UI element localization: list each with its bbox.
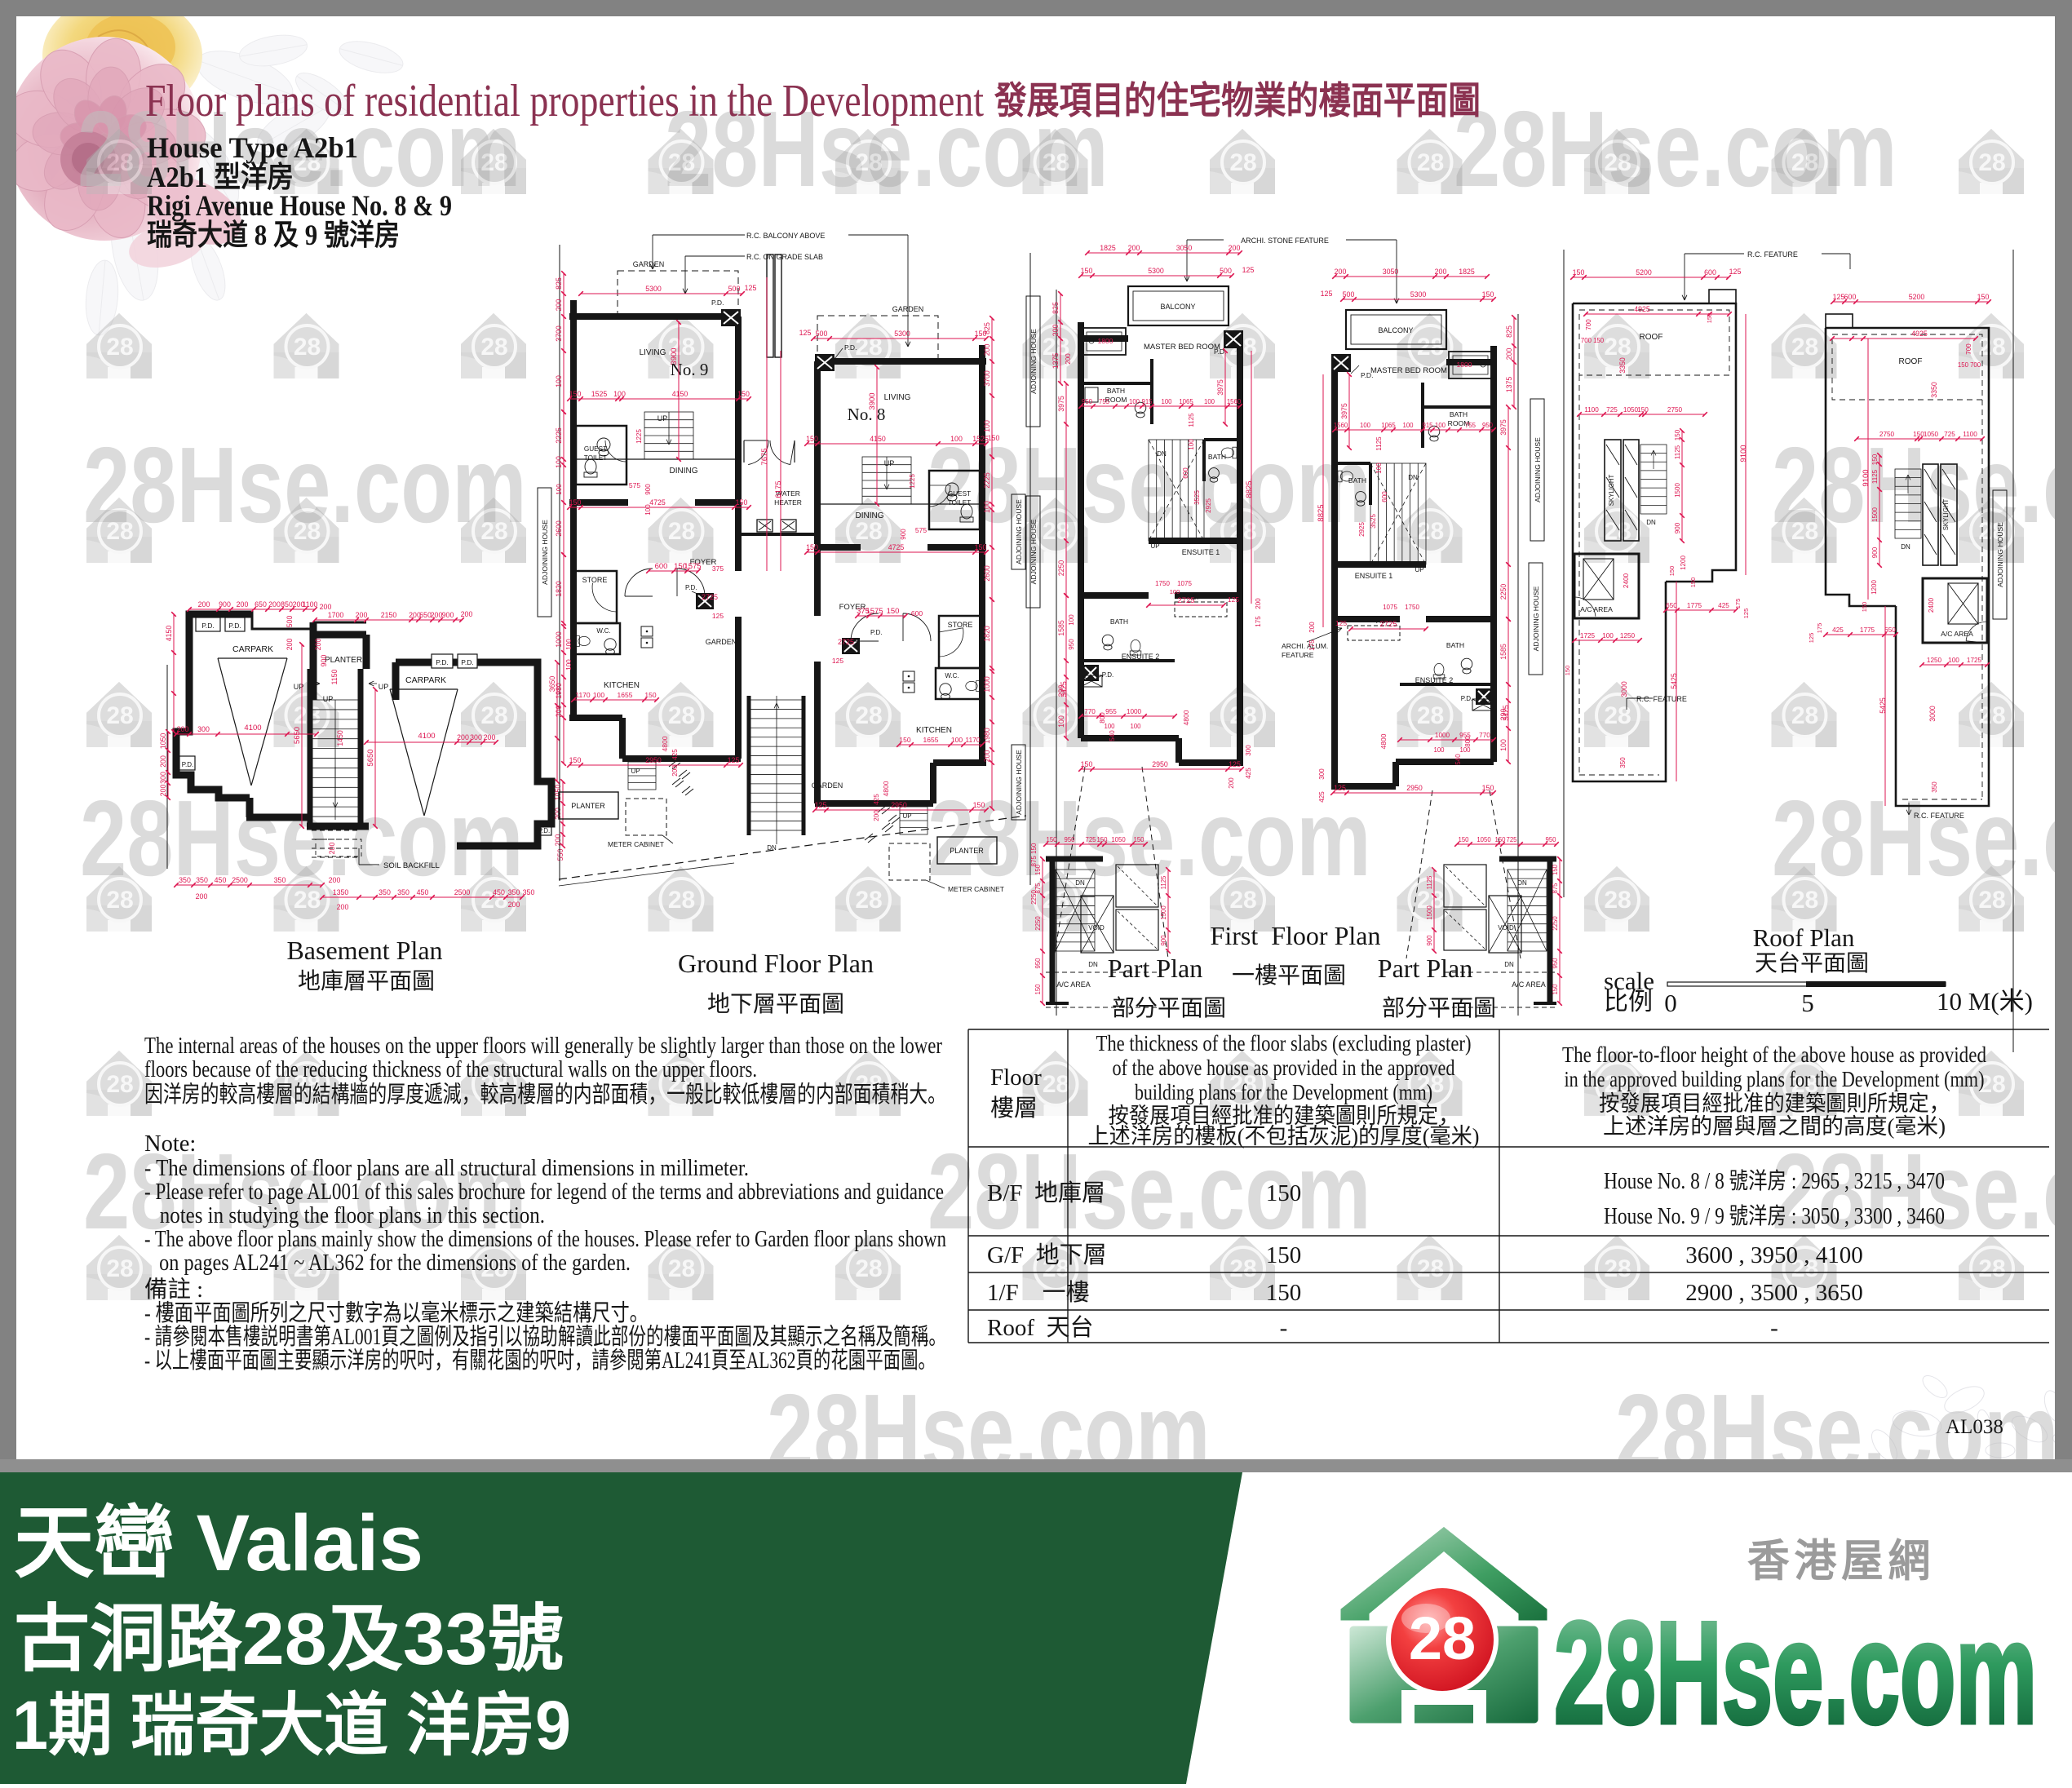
svg-text:DINING: DINING (856, 511, 884, 520)
svg-text:ADJOINING HOUSE: ADJOINING HOUSE (1534, 437, 1542, 502)
svg-text:200: 200 (1335, 268, 1347, 276)
svg-text:1350: 1350 (333, 888, 349, 896)
svg-text:28: 28 (1978, 334, 2005, 361)
svg-text:ROOF: ROOF (1640, 333, 1663, 342)
svg-text:P.D.: P.D. (461, 658, 473, 666)
svg-text:W.C.: W.C. (945, 672, 959, 679)
svg-text:SKYLIGHT: SKYLIGHT (1608, 474, 1615, 506)
svg-text:of the above house as provided: of the above house as provided in the ap… (1113, 1056, 1455, 1080)
svg-text:1250: 1250 (1927, 657, 1942, 664)
svg-text:1125: 1125 (1871, 469, 1879, 484)
svg-text:28: 28 (668, 702, 695, 729)
svg-text:STORE: STORE (948, 621, 973, 629)
svg-text:HEATER: HEATER (774, 498, 802, 507)
svg-text:1775: 1775 (1860, 626, 1875, 634)
svg-text:28: 28 (855, 518, 882, 545)
svg-text:KITCHEN: KITCHEN (604, 681, 640, 690)
svg-text:100: 100 (1375, 462, 1383, 474)
svg-text:350: 350 (1619, 757, 1627, 768)
svg-text:150: 150 (1266, 1242, 1302, 1268)
svg-text:200: 200 (461, 610, 473, 618)
svg-text:BALCONY: BALCONY (1378, 326, 1413, 334)
svg-text:350: 350 (379, 888, 391, 896)
svg-text:- 以上樓面平面圖主要顯示洋房的呎吋，有關花園的呎吋，請參閲: - 以上樓面平面圖主要顯示洋房的呎吋，有關花園的呎吋，請參閲第AL241頁至AL… (144, 1348, 936, 1374)
svg-text:100: 100 (556, 484, 563, 495)
svg-text:150: 150 (1552, 864, 1559, 875)
svg-text:1500: 1500 (1674, 483, 1681, 498)
svg-text:1050: 1050 (1477, 836, 1491, 843)
svg-text:28: 28 (668, 518, 695, 545)
svg-text:5300: 5300 (1148, 267, 1164, 275)
svg-text:2950: 2950 (891, 801, 907, 809)
svg-text:部分平面圖: 部分平面圖 (1112, 995, 1226, 1021)
svg-text:The thickness of the floor sla: The thickness of the floor slabs (exclud… (1096, 1031, 1472, 1056)
svg-text:DN: DN (1075, 879, 1085, 887)
svg-text:1585: 1585 (1499, 644, 1508, 660)
svg-text:3525: 3525 (1370, 514, 1377, 529)
svg-text:1585: 1585 (1057, 620, 1065, 636)
svg-text:9100: 9100 (1862, 469, 1871, 486)
svg-text:28: 28 (294, 334, 321, 361)
svg-text:100: 100 (565, 659, 573, 670)
svg-text:1075: 1075 (1383, 604, 1397, 611)
svg-text:地庫層平面圖: 地庫層平面圖 (298, 968, 435, 994)
svg-text:700 150: 700 150 (1581, 337, 1605, 344)
svg-text:200: 200 (314, 639, 322, 651)
svg-text:125: 125 (1334, 784, 1346, 792)
svg-text:150: 150 (1564, 666, 1571, 676)
svg-text:1825: 1825 (1459, 268, 1475, 276)
svg-text:200: 200 (873, 810, 880, 821)
svg-text:3000: 3000 (1928, 706, 1937, 722)
svg-text:175: 175 (1816, 623, 1823, 634)
svg-text:4725: 4725 (888, 543, 905, 551)
svg-text:1050: 1050 (1111, 836, 1126, 843)
svg-text:28: 28 (106, 887, 133, 914)
svg-text:540: 540 (1454, 754, 1462, 765)
svg-text:House No. 9 / 9 號洋房 : 3050 , 3: House No. 9 / 9 號洋房 : 3050 , 3300 , 3460 (1604, 1203, 1945, 1229)
svg-text:LIVING: LIVING (640, 348, 666, 357)
svg-text:28: 28 (1978, 149, 2005, 176)
svg-text:DN: DN (1408, 474, 1418, 481)
svg-text:200: 200 (328, 843, 336, 855)
svg-text:3900: 3900 (670, 347, 679, 365)
svg-text:1000: 1000 (983, 676, 991, 693)
svg-text:150: 150 (1266, 1180, 1302, 1206)
svg-text:28: 28 (668, 1255, 695, 1282)
svg-text:175: 175 (1734, 599, 1742, 609)
svg-text:2600: 2600 (983, 565, 991, 582)
svg-text:上述洋房的樓板(不包括灰泥)的厚度(毫米): 上述洋房的樓板(不包括灰泥)的厚度(毫米) (1088, 1124, 1480, 1148)
svg-text:150: 150 (1081, 760, 1093, 768)
svg-text:-: - (1770, 1315, 1778, 1341)
svg-text:1655: 1655 (618, 691, 633, 699)
svg-text:200: 200 (329, 876, 341, 884)
svg-text:28: 28 (855, 1255, 882, 1282)
svg-text:725: 725 (1944, 431, 1955, 438)
svg-text:P.D.: P.D. (711, 299, 724, 307)
svg-text:600: 600 (1844, 293, 1857, 301)
svg-text:500: 500 (286, 616, 294, 628)
svg-text:1525: 1525 (591, 390, 608, 398)
svg-text:28Hse.com: 28Hse.com (928, 779, 1371, 899)
svg-text:725: 725 (1506, 836, 1517, 843)
svg-text:瑞奇大道 8 及 9 號洋房: 瑞奇大道 8 及 9 號洋房 (147, 219, 400, 251)
svg-text:200: 200 (983, 750, 991, 763)
svg-text:150: 150 (1674, 429, 1681, 440)
svg-text:28: 28 (1043, 149, 1069, 176)
svg-text:900: 900 (442, 611, 454, 619)
svg-text:ADJOINING HOUSE: ADJOINING HOUSE (1532, 586, 1540, 651)
svg-text:House No. 8 / 8 號洋房 : 2965 , 3: House No. 8 / 8 號洋房 : 2965 , 3215 , 3470 (1604, 1168, 1945, 1194)
svg-text:1/F 一樓: 1/F 一樓 (987, 1279, 1090, 1306)
svg-text:1000: 1000 (1127, 708, 1142, 715)
svg-text:350: 350 (523, 888, 535, 896)
svg-text:800: 800 (1099, 712, 1106, 724)
svg-text:200: 200 (1435, 268, 1447, 276)
svg-text:3700: 3700 (555, 325, 563, 342)
svg-text:1125: 1125 (1160, 875, 1167, 889)
svg-text:150: 150 (1266, 1280, 1302, 1306)
svg-text:3600 , 3950 , 4100: 3600 , 3950 , 4100 (1685, 1242, 1863, 1268)
svg-text:2400: 2400 (1928, 597, 1935, 613)
svg-text:2150: 2150 (381, 611, 397, 619)
svg-text:150: 150 (736, 498, 748, 507)
svg-text:650: 650 (255, 600, 267, 609)
svg-text:28: 28 (1791, 149, 1818, 176)
svg-text:28: 28 (1604, 887, 1631, 914)
svg-text:notes in studying the floor pl: notes in studying the floor plans in thi… (144, 1203, 545, 1228)
svg-text:2250: 2250 (1057, 560, 1065, 577)
svg-text:28: 28 (855, 149, 882, 176)
svg-text:150: 150 (1871, 454, 1879, 465)
svg-text:TOILET: TOILET (584, 454, 608, 462)
svg-text:900: 900 (1426, 935, 1433, 946)
svg-text:150: 150 (1689, 578, 1697, 588)
svg-text:28: 28 (1409, 1604, 1476, 1672)
svg-text:200: 200 (159, 755, 167, 768)
svg-text:2725: 2725 (702, 593, 718, 601)
svg-text:28: 28 (106, 518, 133, 545)
svg-text:UP: UP (323, 695, 334, 703)
svg-text:First Floor Plan: First Floor Plan (1211, 921, 1381, 950)
svg-text:600: 600 (655, 562, 668, 571)
svg-text:2400: 2400 (1623, 573, 1630, 588)
svg-text:200: 200 (484, 733, 496, 741)
svg-text:BATH: BATH (1107, 387, 1125, 395)
svg-text:上述洋房的層與層之間的高度(毫米): 上述洋房的層與層之間的高度(毫米) (1603, 1114, 1946, 1139)
svg-text:因洋房的較高樓層的結構牆的厚度遞減，較高樓層的内部面積，一般: 因洋房的較高樓層的結構牆的厚度遞減，較高樓層的内部面積，一般比較低樓層的内部面積… (144, 1082, 946, 1108)
svg-text:BATH: BATH (1450, 410, 1468, 418)
svg-text:1525: 1525 (972, 435, 989, 443)
svg-text:575: 575 (629, 481, 640, 489)
svg-text:150: 150 (1637, 406, 1649, 414)
svg-text:GARDEN: GARDEN (892, 305, 924, 313)
svg-text:1700: 1700 (328, 611, 344, 619)
svg-text:PLANTER: PLANTER (950, 847, 984, 855)
svg-text:350: 350 (274, 876, 286, 884)
svg-text:150: 150 (975, 543, 987, 551)
svg-text:on pages AL241 ~ AL362 for the: on pages AL241 ~ AL362 for the dimension… (144, 1250, 631, 1276)
svg-text:125: 125 (1229, 760, 1241, 768)
svg-text:5200: 5200 (1636, 268, 1652, 277)
svg-text:770: 770 (1479, 732, 1490, 739)
svg-text:425: 425 (1718, 602, 1729, 609)
svg-text:PLANTER: PLANTER (571, 802, 605, 810)
svg-text:125: 125 (728, 756, 740, 764)
svg-text:AL038: AL038 (1946, 1416, 2003, 1438)
svg-text:2600: 2600 (555, 520, 563, 537)
svg-text:28: 28 (1604, 702, 1631, 729)
svg-text:4800: 4800 (661, 736, 669, 751)
svg-text:1100: 1100 (303, 600, 318, 609)
svg-text:200: 200 (555, 706, 563, 718)
svg-text:200: 200 (1128, 244, 1140, 252)
svg-text:1500: 1500 (1160, 905, 1167, 920)
svg-text:0: 0 (1664, 989, 1677, 1017)
svg-text:575: 575 (915, 526, 927, 534)
svg-text:600: 600 (1182, 467, 1189, 479)
svg-text:150: 150 (569, 756, 582, 764)
svg-text:1125: 1125 (1426, 875, 1433, 889)
svg-text:P.D.: P.D. (1102, 671, 1114, 679)
svg-text:200: 200 (671, 765, 679, 777)
svg-text:100: 100 (1435, 422, 1446, 429)
svg-text:CARPARK: CARPARK (405, 675, 446, 685)
svg-text:28: 28 (1604, 1255, 1631, 1282)
svg-text:100: 100 (983, 420, 991, 432)
svg-text:100: 100 (1204, 398, 1215, 405)
svg-text:28: 28 (1417, 1255, 1444, 1282)
svg-text:150: 150 (1482, 290, 1494, 299)
svg-text:28: 28 (1229, 887, 1256, 914)
svg-text:3425: 3425 (1060, 681, 1068, 697)
svg-text:300: 300 (470, 733, 482, 741)
svg-text:1225: 1225 (909, 474, 916, 489)
svg-text:28: 28 (480, 149, 507, 176)
svg-text:3900: 3900 (868, 392, 877, 409)
svg-text:Rigi Avenue House No. 8 & 9: Rigi Avenue House No. 8 & 9 (147, 189, 452, 222)
svg-text:UP: UP (631, 768, 640, 775)
svg-text:4800: 4800 (882, 781, 890, 796)
svg-text:100: 100 (1602, 632, 1614, 640)
svg-text:R.C. BALCONY ABOVE: R.C. BALCONY ABOVE (746, 232, 825, 240)
svg-text:28: 28 (668, 149, 695, 176)
svg-text:-: - (1280, 1315, 1288, 1341)
svg-text:28: 28 (1791, 887, 1818, 914)
svg-text:P.D.: P.D. (1461, 695, 1473, 702)
svg-text:天巒 Valais: 天巒 Valais (14, 1498, 423, 1587)
svg-text:A/C AREA: A/C AREA (1056, 980, 1091, 989)
svg-text:P.D.: P.D. (870, 629, 883, 636)
svg-text:W.C.: W.C. (596, 627, 610, 635)
svg-text:DINING: DINING (670, 467, 698, 476)
svg-text:1375: 1375 (1051, 353, 1060, 370)
svg-text:3525: 3525 (1193, 490, 1201, 505)
svg-text:Note:: Note: (144, 1131, 196, 1157)
svg-text:SOIL BACKFILL: SOIL BACKFILL (383, 861, 440, 870)
svg-text:1期 瑞奇大道 洋房9: 1期 瑞奇大道 洋房9 (12, 1687, 571, 1764)
svg-text:950: 950 (1068, 639, 1075, 650)
svg-text:SKYLIGHT: SKYLIGHT (1942, 498, 1950, 530)
svg-text:28: 28 (1229, 149, 1256, 176)
svg-text:100: 100 (555, 456, 563, 468)
svg-text:ENSUITE 2: ENSUITE 2 (1415, 676, 1454, 684)
svg-text:A/C AREA: A/C AREA (1512, 980, 1546, 989)
svg-text:200: 200 (983, 344, 991, 356)
svg-text:DN: DN (1504, 961, 1514, 968)
svg-text:100: 100 (593, 691, 604, 699)
svg-text:950: 950 (1552, 958, 1559, 969)
svg-text:2900 , 3500 , 3650: 2900 , 3500 , 3650 (1685, 1280, 1863, 1306)
svg-text:GARDEN: GARDEN (706, 638, 737, 646)
svg-text:No. 8: No. 8 (848, 405, 886, 424)
svg-text:ENSUITE 1: ENSUITE 1 (1182, 548, 1220, 556)
svg-text:200: 200 (1255, 598, 1262, 609)
svg-text:150: 150 (1573, 268, 1585, 277)
svg-text:1065: 1065 (1179, 398, 1193, 405)
svg-text:200: 200 (1065, 353, 1072, 365)
svg-text:Ground Floor Plan: Ground Floor Plan (678, 949, 874, 978)
svg-text:100: 100 (1130, 723, 1141, 730)
svg-text:PLANTER: PLANTER (325, 656, 362, 665)
svg-text:150: 150 (1096, 836, 1108, 843)
svg-text:Roof 天台: Roof 天台 (987, 1314, 1094, 1341)
svg-text:1170: 1170 (575, 691, 591, 699)
svg-text:900: 900 (1160, 935, 1167, 946)
svg-text:2250: 2250 (1034, 916, 1042, 931)
svg-text:200: 200 (1228, 777, 1235, 789)
svg-text:28Hse.com: 28Hse.com (928, 426, 1371, 546)
svg-text:900: 900 (644, 484, 652, 495)
svg-text:700: 700 (1965, 343, 1972, 355)
svg-text:5200: 5200 (1909, 293, 1925, 301)
svg-text:MASTER BED ROOM: MASTER BED ROOM (1370, 366, 1447, 375)
svg-text:875: 875 (1552, 883, 1559, 894)
svg-text:R.C. FEATURE: R.C. FEATURE (1747, 250, 1798, 259)
svg-text:P.D.: P.D. (228, 622, 241, 630)
svg-text:200: 200 (356, 611, 368, 619)
svg-text:ROOF: ROOF (1899, 357, 1923, 366)
svg-text:900: 900 (900, 529, 907, 540)
svg-text:755: 755 (1465, 422, 1477, 429)
svg-text:755: 755 (1099, 398, 1110, 405)
svg-text:1100: 1100 (1963, 431, 1977, 438)
svg-text:1575: 1575 (684, 562, 701, 571)
svg-text:1820: 1820 (555, 581, 563, 597)
svg-text:TOILET: TOILET (948, 499, 972, 507)
svg-text:2500: 2500 (232, 876, 248, 884)
svg-text:8825: 8825 (1317, 504, 1326, 521)
svg-text:3000: 3000 (1620, 681, 1628, 697)
svg-text:5300: 5300 (1410, 290, 1427, 299)
svg-text:地下層平面圖: 地下層平面圖 (707, 991, 844, 1017)
svg-text:一樓平面圖: 一樓平面圖 (1232, 963, 1346, 989)
svg-text:ENSUITE 1: ENSUITE 1 (1355, 572, 1393, 580)
svg-text:100: 100 (613, 390, 626, 398)
svg-text:200: 200 (1308, 622, 1316, 633)
svg-text:1800: 1800 (1098, 337, 1113, 345)
svg-text:3975: 3975 (1216, 379, 1224, 396)
svg-text:425: 425 (1245, 768, 1252, 779)
svg-text:5: 5 (1801, 989, 1814, 1017)
svg-text:G/F 地下層: G/F 地下層 (987, 1241, 1107, 1268)
svg-text:28: 28 (1417, 334, 1444, 361)
svg-text:1000: 1000 (555, 631, 563, 648)
svg-text:1500: 1500 (1871, 507, 1879, 522)
svg-text:200: 200 (457, 733, 469, 741)
svg-text:150: 150 (1133, 836, 1144, 843)
svg-text:floors because of the reducing: floors because of the reducing thickness… (144, 1057, 757, 1082)
svg-text:150 700: 150 700 (1958, 361, 1981, 369)
svg-text:950: 950 (1064, 836, 1075, 843)
svg-text:按發展項目經批准的建築圖則所規定，: 按發展項目經批准的建築圖則所規定， (1599, 1091, 1950, 1116)
svg-text:Part Plan: Part Plan (1378, 954, 1472, 983)
svg-text:KITCHEN: KITCHEN (916, 726, 952, 735)
svg-text:6175: 6175 (774, 480, 783, 498)
svg-text:1980: 1980 (555, 683, 563, 699)
svg-text:CARPARK: CARPARK (232, 644, 273, 654)
svg-text:2225: 2225 (555, 427, 563, 444)
svg-text:125: 125 (1321, 290, 1333, 298)
svg-text:P.D.: P.D. (538, 827, 551, 834)
svg-text:5650: 5650 (366, 749, 375, 766)
svg-text:350: 350 (196, 876, 208, 884)
svg-text:200: 200 (555, 299, 563, 312)
svg-text:28: 28 (855, 887, 882, 914)
svg-text:1750: 1750 (1405, 604, 1419, 611)
svg-text:The floor-to-floor height of t: The floor-to-floor height of the above h… (1562, 1042, 1986, 1067)
svg-text:300: 300 (1318, 768, 1326, 780)
svg-text:100: 100 (951, 736, 963, 744)
svg-text:200: 200 (286, 639, 294, 651)
svg-text:350: 350 (397, 888, 410, 896)
svg-text:古洞路28及33號: 古洞路28及33號 (14, 1599, 564, 1680)
svg-text:100: 100 (555, 375, 563, 387)
svg-text:in the approved building plans: in the approved building plans for the D… (1565, 1067, 1985, 1091)
svg-text:R.C. ON GRADE SLAB: R.C. ON GRADE SLAB (746, 253, 823, 261)
svg-text:ENSUITE 2: ENSUITE 2 (1122, 653, 1160, 661)
svg-text:200: 200 (159, 785, 167, 797)
svg-text:Floor: Floor (990, 1064, 1042, 1091)
svg-text:ADJOINING HOUSE: ADJOINING HOUSE (1029, 329, 1038, 394)
svg-text:200: 200 (177, 725, 189, 733)
svg-text:125: 125 (1242, 266, 1255, 274)
svg-text:1750: 1750 (1155, 580, 1170, 587)
svg-text:650: 650 (1666, 602, 1677, 609)
svg-text:150: 150 (1081, 267, 1093, 275)
svg-text:STORE: STORE (582, 576, 608, 584)
svg-text:building plans for the Develop: building plans for the Development (mm) (1135, 1080, 1432, 1104)
svg-text:1125: 1125 (1375, 436, 1383, 451)
svg-text:P.D.: P.D. (685, 584, 697, 591)
svg-text:1100: 1100 (1584, 406, 1599, 414)
svg-text:9100: 9100 (1739, 445, 1748, 462)
svg-text:150: 150 (1552, 984, 1559, 995)
svg-text:825: 825 (983, 322, 991, 334)
svg-text:425: 425 (1832, 626, 1844, 634)
svg-text:1125: 1125 (1188, 413, 1195, 427)
svg-text:發展項目的住宅物業的樓面平面圖: 發展項目的住宅物業的樓面平面圖 (994, 80, 1481, 122)
svg-text:100: 100 (1161, 398, 1172, 405)
svg-text:3425: 3425 (1502, 705, 1510, 721)
svg-text:- Please refer to page AL001 o: - Please refer to page AL001 of this sal… (144, 1179, 944, 1205)
svg-text:R.C. FEATURE: R.C. FEATURE (1914, 812, 1964, 820)
svg-text:28: 28 (480, 518, 507, 545)
svg-text:28: 28 (1791, 702, 1818, 729)
svg-text:4150: 4150 (870, 435, 886, 443)
svg-text:1725: 1725 (1967, 657, 1982, 664)
